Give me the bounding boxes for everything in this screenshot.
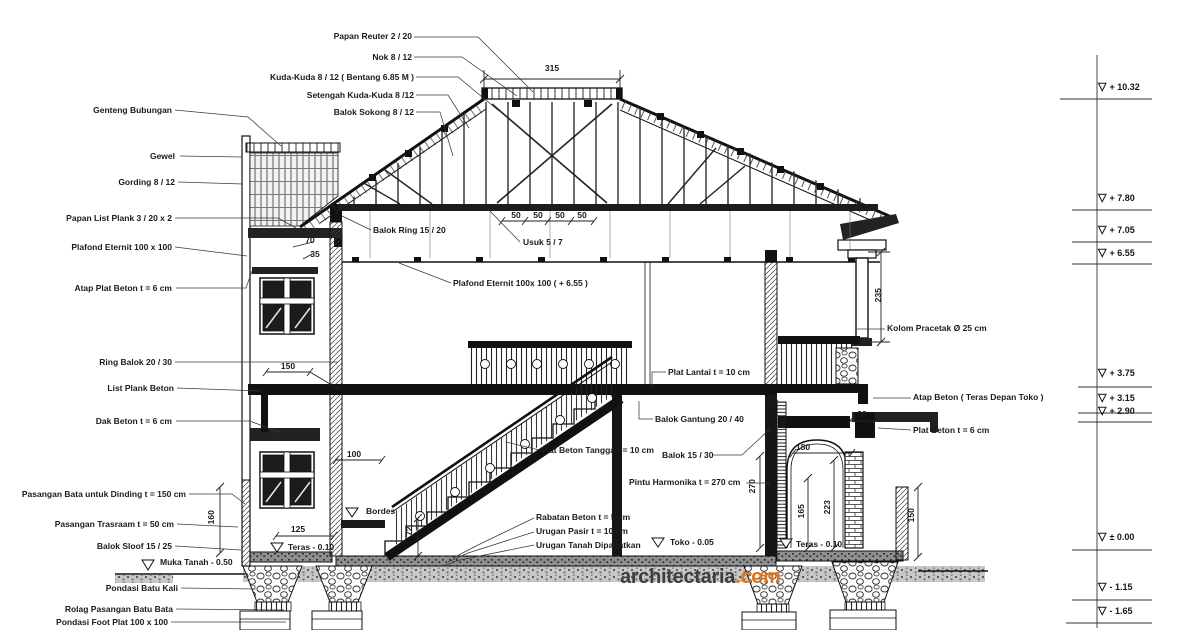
label-plafond-eternit-left: Plafond Eternit 100 x 100 [52, 243, 172, 252]
dim-150-right: 150 [907, 502, 916, 528]
dim-150-left: 150 [270, 362, 306, 371]
label-papan-reuter: Papan Reuter 2 / 20 [310, 32, 412, 41]
elevation-7-80: ▽+ 7.80 [1098, 194, 1135, 203]
level-triangle-icon: ▽ [1098, 533, 1106, 542]
label-balok-ring-15-20: Balok Ring 15 / 20 [373, 226, 446, 235]
label-setengah-kuda-kuda: Setengah Kuda-Kuda 8 /12 [284, 91, 414, 100]
elevation-7-05: ▽+ 7.05 [1098, 226, 1135, 235]
label-pintu-harmonika: Pintu Harmonika t = 270 cm [629, 478, 740, 487]
dim-235: 235 [874, 282, 883, 308]
level-triangle-icon: ▽ [1098, 194, 1106, 203]
dim-180: 180 [788, 443, 818, 452]
label-pondasi-foot-plat: Pondasi Foot Plat 100 x 100 [28, 618, 168, 627]
label-plat-lantai: Plat Lantai t = 10 cm [668, 368, 750, 377]
elevation-6-55: ▽+ 6.55 [1098, 249, 1135, 258]
label-papan-list-plank: Papan List Plank 3 / 20 x 2 [52, 214, 172, 223]
dim-315: 315 [534, 64, 570, 73]
dim-50-2: 50 [530, 211, 546, 220]
level-triangle-icon: ▽ [1098, 583, 1106, 592]
label-toko: Toko - 0.05 [670, 538, 714, 547]
dim-72: 72 [405, 518, 414, 544]
dim-165: 165 [797, 498, 806, 524]
label-rabatan-beton: Rabatan Beton t = 5 cm [536, 513, 630, 522]
label-list-plank-beton: List Plank Beton [52, 384, 174, 393]
label-usuk: Usuk 5 / 7 [523, 238, 563, 247]
label-urugan-tanah: Urugan Tanah Dipadatkan [536, 541, 641, 550]
elevation-lines [1060, 55, 1152, 628]
label-pondasi-batu-kali: Pondasi Batu Kali [58, 584, 178, 593]
plafond [342, 211, 880, 262]
level-triangle-icon: ▽ [1098, 83, 1106, 92]
blueprint-page: Papan Reuter 2 / 20 Nok 8 / 12 Kuda-Kuda… [0, 0, 1200, 630]
dim-223: 223 [823, 494, 832, 520]
label-atap-plat-beton: Atap Plat Beton t = 6 cm [48, 284, 172, 293]
label-genteng-bubungan: Genteng Bubungan [62, 106, 172, 115]
label-plat-beton-6: Plat Beton t = 6 cm [913, 426, 989, 435]
label-rolag: Rolag Pasangan Batu Bata [35, 605, 173, 614]
label-muka-tanah: Muka Tanah - 0.50 [160, 558, 233, 567]
elevation-3-15: ▽+ 3.15 [1098, 394, 1135, 403]
label-kolom-pracetak: Kolom Pracetak Ø 25 cm [887, 324, 987, 333]
dim-100: 100 [340, 450, 368, 459]
level-triangle-icon: ▽ [1098, 407, 1106, 416]
watermark: architectaria.com [620, 567, 781, 587]
dim-50-1: 50 [508, 211, 524, 220]
dim-50-4: 50 [574, 211, 590, 220]
level-triangle-icon: ▽ [1098, 394, 1106, 403]
label-kuda-kuda: Kuda-Kuda 8 / 12 ( Bentang 6.85 M ) [266, 73, 414, 82]
ground-and-foundations [115, 562, 988, 630]
elevation-minus-1-65: ▽- 1.65 [1098, 607, 1132, 616]
label-balok-sokong: Balok Sokong 8 / 12 [304, 108, 414, 117]
label-dak-beton: Dak Beton t = 6 cm [48, 417, 172, 426]
dim-30-slab: 30 [763, 394, 781, 403]
elevation-0-00: ▽± 0.00 [1098, 533, 1134, 542]
label-nok: Nok 8 / 12 [332, 53, 412, 62]
label-pasangan-bata: Pasangan Bata untuk Dinding t = 150 cm [10, 490, 186, 499]
label-teras-left: Teras - 0.10 [288, 543, 334, 552]
label-plafond-eternit-655: Plafond Eternit 100x 100 ( + 6.55 ) [453, 279, 588, 288]
upper-window [260, 278, 314, 334]
balcony-and-column [468, 250, 876, 384]
label-balok-gantung: Balok Gantung 20 / 40 [655, 415, 744, 424]
dim-30-canopy: 30 [853, 410, 871, 419]
lower-window [260, 452, 314, 508]
level-triangle-icon: ▽ [1098, 226, 1106, 235]
level-triangle-icon: ▽ [1098, 249, 1106, 258]
left-gable-elevation [242, 136, 342, 566]
label-gewel: Gewel [82, 152, 175, 161]
label-balok-15-30: Balok 15 / 30 [662, 451, 714, 460]
elevation-2-90: ▽+ 2.90 [1098, 407, 1135, 416]
level-triangle-icon: ▽ [1098, 369, 1106, 378]
dim-270: 270 [748, 473, 757, 499]
dim-50-3: 50 [552, 211, 568, 220]
label-pasangan-trasraam: Pasangan Trasraam t = 50 cm [30, 520, 174, 529]
elevation-3-75: ▽+ 3.75 [1098, 369, 1135, 378]
label-ring-balok: Ring Balok 20 / 30 [52, 358, 172, 367]
label-balok-sloof: Balok Sloof 15 / 25 [50, 542, 172, 551]
watermark-tld: .com [735, 566, 780, 588]
label-gording: Gording 8 / 12 [72, 178, 175, 187]
elevation-minus-1-15: ▽- 1.15 [1098, 583, 1132, 592]
label-teras-right: Teras - 0.10 [796, 540, 842, 549]
watermark-brand: architectaria [620, 566, 735, 588]
label-atap-beton-teras: Atap Beton ( Teras Depan Toko ) [913, 393, 1044, 402]
label-plat-beton-tangga: Plat Beton Tangga t = 10 cm [541, 446, 654, 455]
dim-160: 160 [207, 504, 216, 530]
elevation-10-32: ▽+ 10.32 [1098, 83, 1140, 92]
label-bordes: Bordes [366, 507, 395, 516]
label-urugan-pasir: Urugan Pasir t = 10 cm [536, 527, 628, 536]
dim-35: 35 [305, 250, 325, 259]
dim-125: 125 [282, 525, 314, 534]
dim-70: 70 [300, 236, 320, 245]
level-triangle-icon: ▽ [1098, 607, 1106, 616]
